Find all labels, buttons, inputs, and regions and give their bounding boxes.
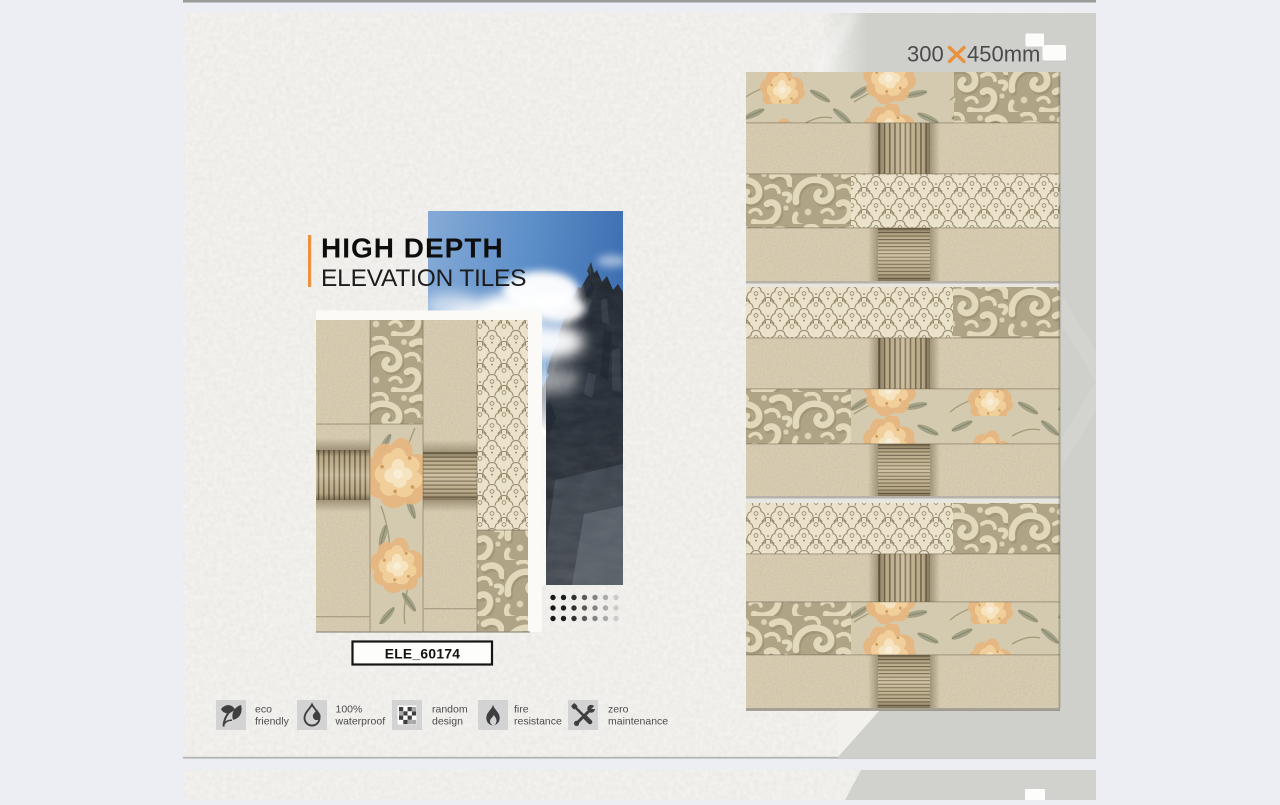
svg-text:maintenance: maintenance	[608, 716, 668, 728]
svg-text:100%: 100%	[336, 704, 363, 716]
svg-text:design: design	[432, 716, 463, 728]
svg-text:friendly: friendly	[255, 716, 290, 728]
svg-text:ELEVATION TILES: ELEVATION TILES	[321, 265, 526, 292]
svg-text:ELE_60174: ELE_60174	[385, 647, 461, 662]
svg-text:fire: fire	[514, 704, 529, 716]
svg-text:resistance: resistance	[514, 716, 562, 728]
svg-text:eco: eco	[255, 704, 272, 716]
svg-text:300: 300	[907, 42, 944, 67]
svg-text:zero: zero	[608, 704, 629, 716]
svg-text:waterproof: waterproof	[335, 716, 386, 728]
svg-text:HIGH DEPTH: HIGH DEPTH	[321, 233, 504, 264]
svg-text:random: random	[432, 704, 468, 716]
